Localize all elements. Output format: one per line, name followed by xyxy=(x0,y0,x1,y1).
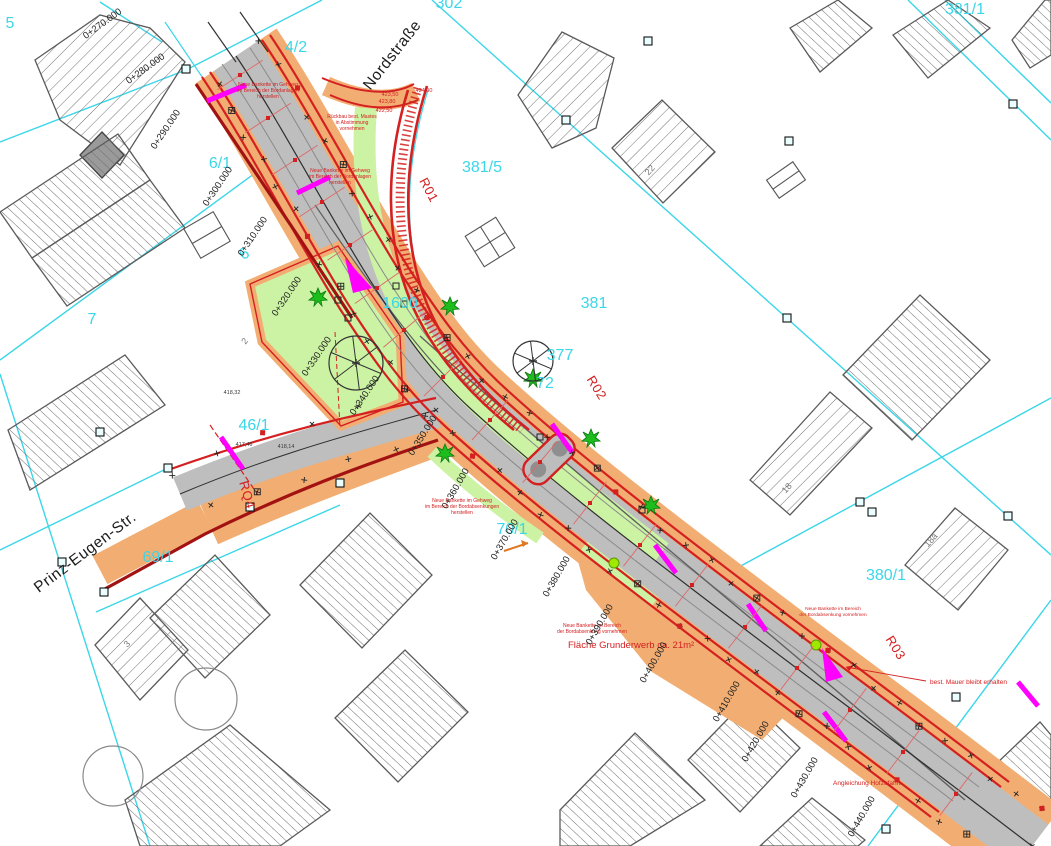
station-label: 0+290.000 xyxy=(149,108,183,152)
boundary-point-marker xyxy=(644,37,652,45)
boundary-point-marker xyxy=(783,314,791,322)
building xyxy=(125,725,330,846)
plan-canvas: 54/2302381/1381/56/16716003813777246/169… xyxy=(0,0,1051,846)
building xyxy=(8,355,165,490)
parcel-label: 381/5 xyxy=(462,159,502,176)
building xyxy=(518,32,614,148)
boundary-point-marker xyxy=(182,65,190,73)
building xyxy=(790,0,872,72)
station-point xyxy=(402,328,406,332)
boundary-point-marker xyxy=(856,498,864,506)
section-label: R01 xyxy=(416,175,441,204)
building xyxy=(1012,0,1051,68)
site-plan-svg: 54/2302381/1381/56/16716003813777246/169… xyxy=(0,0,1051,846)
station-label: 0+430.000 xyxy=(789,755,821,800)
boundary-point-marker xyxy=(868,508,876,516)
station-point xyxy=(375,286,379,290)
station-point xyxy=(538,460,542,464)
building xyxy=(612,100,715,203)
boundary-point-marker xyxy=(1009,100,1017,108)
spot-elevation: 424,00 xyxy=(416,88,433,94)
station-point xyxy=(638,543,642,547)
parcel-label: 377 xyxy=(547,347,574,364)
boundary-point-marker xyxy=(1004,512,1012,520)
parcel-label: 4/2 xyxy=(285,39,307,56)
spot-elevation: 423,80 xyxy=(379,99,396,105)
street-name-label: Nordstraße xyxy=(360,17,425,93)
boundary-point-marker xyxy=(785,137,793,145)
section-label: R02 xyxy=(584,373,610,402)
parcel-label: 5 xyxy=(6,15,15,32)
kerb-point-marker xyxy=(1039,806,1044,811)
boundary-point-marker xyxy=(882,825,890,833)
parcel-label: 46/1 xyxy=(238,417,269,434)
station-point xyxy=(488,418,492,422)
red-annotation: Neue Bankette im Bereichder Bordabsenkun… xyxy=(799,606,867,618)
spot-elevation: 422,50 xyxy=(376,108,393,114)
station-point xyxy=(901,750,905,754)
building xyxy=(750,392,872,515)
spot-elevation: 418,14 xyxy=(278,444,295,450)
tree-canopy-icon xyxy=(83,746,143,806)
kerb-point-marker xyxy=(613,489,618,494)
parcel-label: 7 xyxy=(88,311,97,328)
marker-dot-icon xyxy=(609,558,619,568)
station-point xyxy=(690,583,694,587)
station-point xyxy=(588,501,592,505)
kerb-point-marker xyxy=(677,624,682,629)
station-label: 0+310.000 xyxy=(236,215,270,259)
parcel-label: 69/1 xyxy=(142,549,173,566)
station-point xyxy=(848,708,852,712)
parcel-label: 302 xyxy=(436,0,463,12)
parcel-label: 1600 xyxy=(382,295,418,312)
boundary-point-marker xyxy=(96,428,104,436)
boundary-point-marker xyxy=(562,116,570,124)
kerb-point-marker xyxy=(826,648,831,653)
building xyxy=(905,508,1008,610)
kerb-point-marker xyxy=(425,315,430,320)
building-number: 2 xyxy=(239,336,250,346)
red-annotation: Neue Bankette im Gehwegim Bereich der Bo… xyxy=(425,498,499,516)
station-point xyxy=(238,73,242,77)
red-annotation: Angleichung Hofzufahrt xyxy=(833,780,901,787)
building xyxy=(300,513,432,648)
building xyxy=(560,733,705,846)
parcel-label: 381/1 xyxy=(945,1,985,18)
parcel-label: 381 xyxy=(581,295,608,312)
marker-dot-icon xyxy=(811,640,821,650)
building xyxy=(843,295,990,440)
building xyxy=(760,798,865,846)
station-point xyxy=(266,116,270,120)
boundary-point-marker xyxy=(952,693,960,701)
spot-elevation: 417,46 xyxy=(236,442,253,448)
station-point xyxy=(743,625,747,629)
station-point xyxy=(954,792,958,796)
kerb-point-marker xyxy=(305,234,310,239)
parcel-label: 72 xyxy=(536,375,554,392)
boundary-point-marker xyxy=(100,588,108,596)
spot-elevation: 418,32 xyxy=(224,390,241,396)
station-point xyxy=(320,200,324,204)
station-point xyxy=(795,666,799,670)
red-annotation: best. Mauer bleibt erhalten xyxy=(930,679,1007,686)
station-label: 0+380.000 xyxy=(541,554,573,599)
spot-elevation: 423,50 xyxy=(382,92,399,98)
boundary-point-marker xyxy=(164,464,172,472)
parcel-label: 380/1 xyxy=(866,567,906,584)
section-label: R03 xyxy=(883,633,909,662)
station-point xyxy=(441,375,445,379)
cross-section-marker xyxy=(1018,682,1038,706)
station-label: 0+440.000 xyxy=(846,794,878,839)
station-point xyxy=(293,158,297,162)
kerb-point-marker xyxy=(470,454,475,459)
boundary-point-marker xyxy=(336,479,344,487)
building xyxy=(335,650,468,782)
station-point xyxy=(348,243,352,247)
